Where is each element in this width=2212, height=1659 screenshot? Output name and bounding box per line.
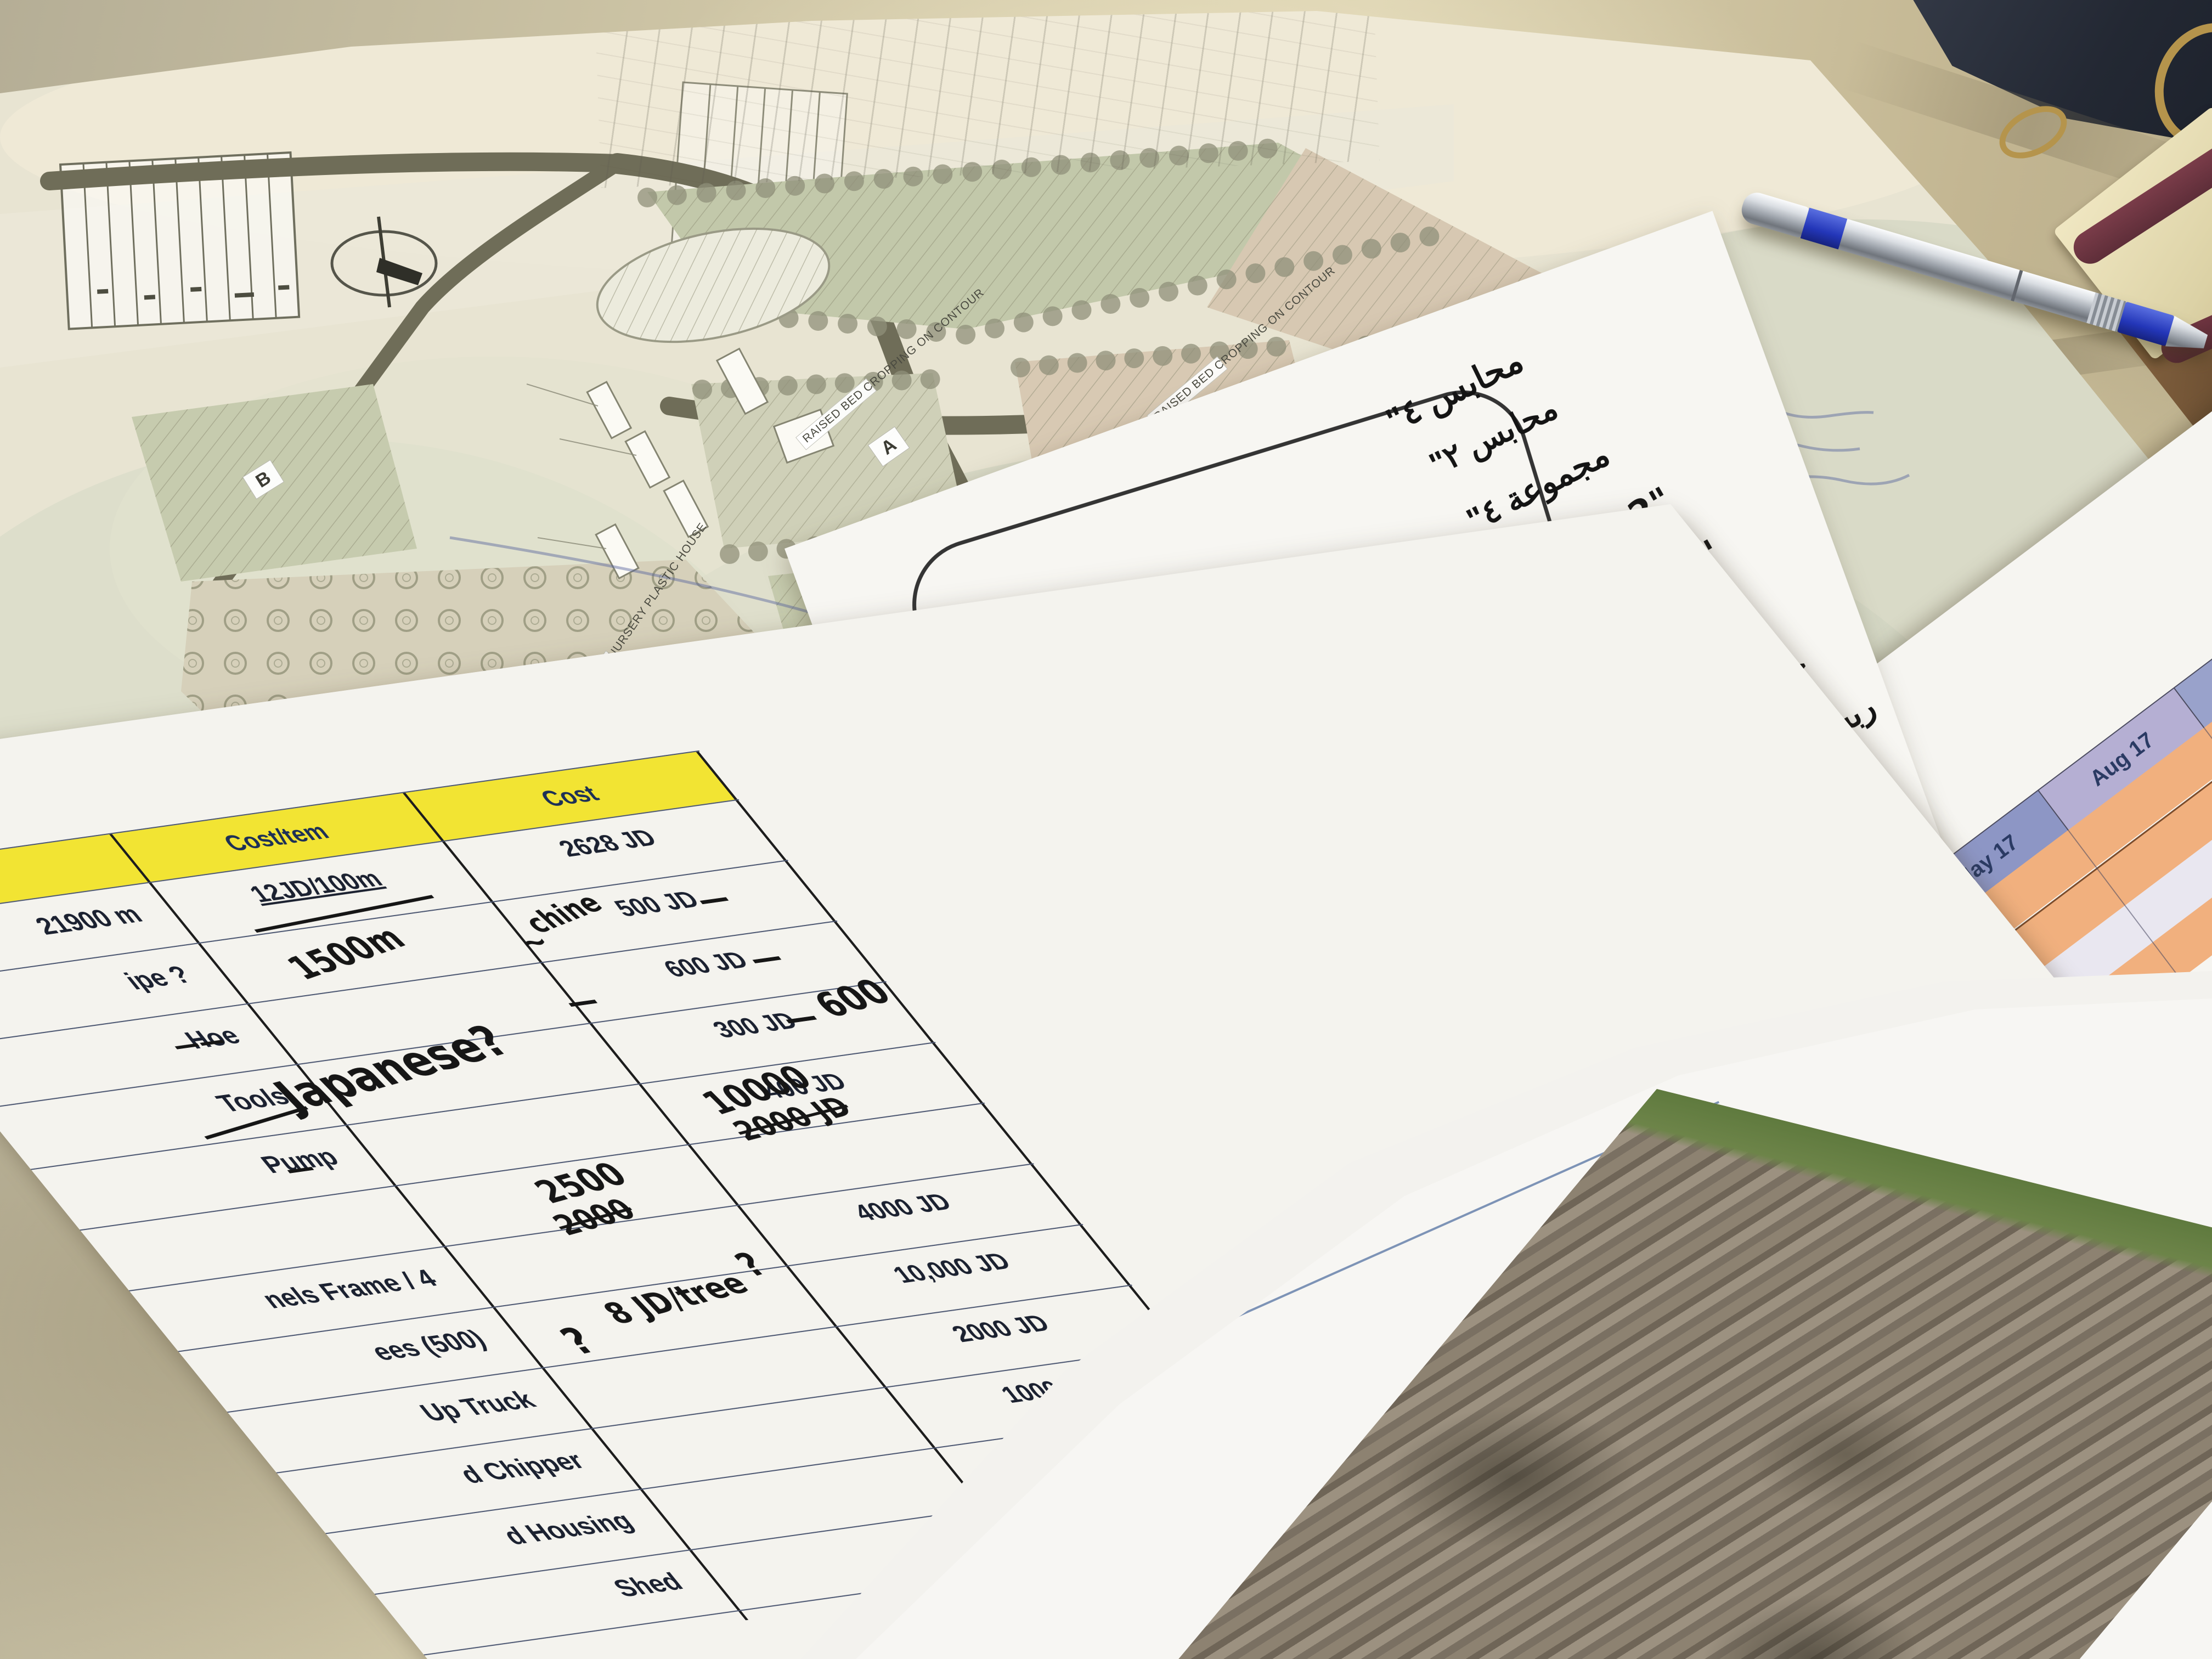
parcel-label: B (242, 460, 284, 500)
dark-table-corner (1887, 0, 2212, 165)
parcel-label: A (868, 426, 910, 467)
map-title-block (595, 0, 1380, 188)
hw-8jd-tree: 8 JD/tree (595, 1266, 757, 1331)
cost-cell: 10,000 JD (795, 1235, 1109, 1301)
column-border (109, 834, 748, 1620)
hw-question: ? (551, 1320, 606, 1363)
item-cell: ipe ? (0, 960, 198, 1026)
item-cell: 21900 m (0, 900, 149, 966)
parcel-letter-text: A (877, 434, 900, 459)
journal-ring-icon (1990, 95, 2075, 169)
photo-scene: RAISED BED CROPPING ON CONTOUR RAISED BE… (0, 0, 2212, 1659)
parcel-letter-text: B (252, 467, 274, 492)
compass-icon (332, 217, 436, 307)
cost-cell: 4000 JD (746, 1175, 1059, 1240)
map-area-label: RAISED BED CROPPING ON CONTOUR (795, 379, 877, 450)
